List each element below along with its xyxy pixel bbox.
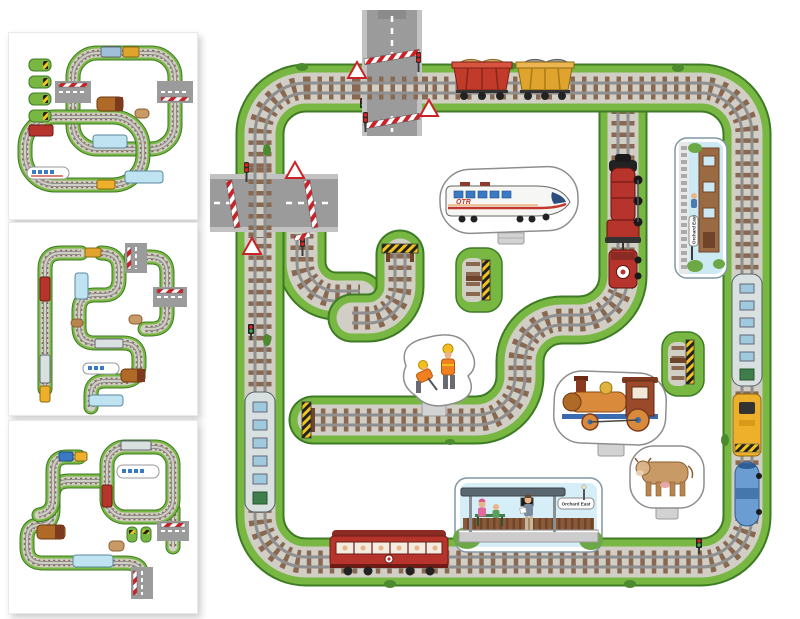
- alt-layout-thumbnail-2: [8, 222, 198, 416]
- train-logo-text: OTR: [456, 199, 471, 206]
- inner-curve-track: [302, 234, 360, 296]
- freight-hopper-yellow: [516, 59, 574, 100]
- trackside-station-piece: Orchard East: [675, 138, 727, 278]
- lamp-post: [583, 488, 585, 500]
- loose-buffer-piece: [456, 248, 502, 312]
- mini-buffer-pieces: [127, 527, 151, 542]
- platform-sign-text: Orchard East: [562, 502, 591, 507]
- blue-tanker-wagon: [735, 462, 762, 526]
- mini-level-crossing: [131, 567, 153, 599]
- station-person: [691, 193, 697, 199]
- high-speed-train-piece: OTR: [439, 166, 579, 244]
- mini-white-train: [83, 363, 119, 374]
- main-puzzle-board: Orchard East: [210, 10, 795, 615]
- mini-buffer-pieces: [29, 59, 51, 122]
- alt-layout-1-drawing: [9, 33, 197, 219]
- station-platform-piece: Orchard East: [453, 478, 603, 552]
- yellow-shunter: [733, 394, 761, 456]
- loose-buffer-piece: [662, 332, 704, 396]
- toy-engine-piece: [553, 370, 667, 456]
- silver-coach-right: [732, 274, 762, 386]
- main-board-drawing: Orchard East: [210, 10, 795, 615]
- mini-white-train: [117, 465, 159, 478]
- warning-sign: [286, 162, 304, 178]
- alt-layout-2-drawing: [9, 223, 197, 415]
- alt-layout-thumbnail-1: [8, 32, 198, 220]
- station-sign: Orchard East: [689, 215, 698, 246]
- mini-level-crossing: [153, 287, 187, 307]
- brass-dome: [600, 382, 612, 394]
- alt-layout-3-drawing: [9, 421, 197, 613]
- freight-hopper-red: [452, 59, 512, 100]
- mini-level-crossing: [125, 243, 147, 273]
- product-image: Orchard East: [0, 0, 800, 619]
- waiting-child: [493, 504, 500, 518]
- station-sign-text: Orchard East: [692, 215, 697, 244]
- mini-track-meander: [45, 253, 167, 407]
- alt-layout-thumbnail-3: [8, 420, 198, 614]
- cow-piece: [630, 446, 704, 519]
- platform-sign: Orchard East: [558, 498, 594, 509]
- mini-white-train: [27, 167, 69, 179]
- mini-level-crossing: [157, 521, 189, 541]
- steam-locomotive: [605, 154, 643, 243]
- silver-coach-left: [245, 392, 275, 512]
- mini-level-crossing: [55, 81, 91, 103]
- mini-level-crossing: [157, 81, 193, 103]
